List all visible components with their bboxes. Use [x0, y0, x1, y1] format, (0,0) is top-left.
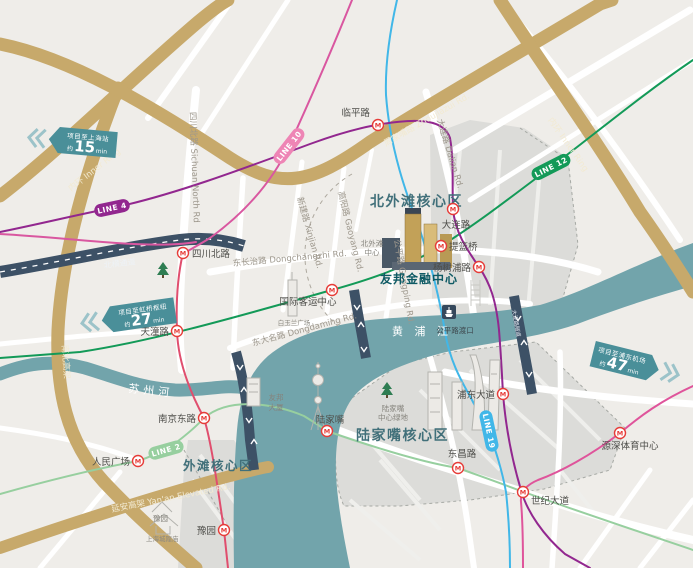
station-marker: M — [327, 285, 338, 296]
lujiazui-green-label: 陆家嘴 — [382, 403, 405, 413]
metro-logo-icon: M — [375, 121, 381, 129]
station-label: 豫园 — [197, 525, 216, 537]
magnolia-plaza-label: 白玉兰广场 — [278, 318, 311, 327]
station-marker: M — [219, 525, 230, 536]
yuyuan-label: 豫园 — [153, 513, 168, 523]
north-bund-center-label: 北外滩 — [361, 238, 384, 248]
station-label: 南京东路 — [158, 413, 197, 425]
station-label: 国际客运中心 — [279, 296, 337, 308]
station-label: 人民广场 — [92, 456, 130, 468]
metro-logo-icon: M — [500, 390, 506, 398]
station-marker: M — [448, 204, 459, 215]
station-marker: M — [453, 463, 464, 474]
metro-logo-icon: M — [180, 249, 186, 257]
lujiazui-area-label: 陆家嘴核心区 — [356, 427, 449, 444]
station-label: 东昌路 — [448, 448, 477, 460]
aia-tower-label: 大厦 — [269, 402, 284, 412]
metro-logo-icon: M — [324, 427, 330, 435]
metro-location-map: 内环 Inner Ring 内环 Inner Ring 周家嘴路 Zhoujia… — [0, 0, 693, 568]
metro-logo-icon: M — [617, 429, 623, 437]
metro-logo-icon: M — [221, 526, 227, 534]
metro-logo-icon: M — [135, 457, 141, 465]
gongping-ferry-label: 公平路渡口 — [436, 325, 474, 335]
north-bund-center-label: 中心 — [365, 247, 380, 257]
metro-logo-icon: M — [520, 488, 526, 496]
station-label: 提篮桥 — [449, 241, 478, 253]
station-marker: M — [178, 248, 189, 259]
station-marker: M — [518, 487, 529, 498]
station-label: 临平路 — [341, 107, 370, 119]
metro-logo-icon: M — [450, 205, 456, 213]
station-marker: M — [373, 120, 384, 131]
station-marker: M — [498, 389, 509, 400]
station-marker: M — [322, 426, 333, 437]
station-label: 世纪大道 — [531, 495, 570, 507]
metro-logo-icon: M — [329, 286, 335, 294]
station-label: 大连路 — [442, 219, 471, 231]
map-canvas: 内环 Inner Ring 内环 Inner Ring 周家嘴路 Zhoujia… — [0, 0, 693, 568]
station-marker: M — [172, 326, 183, 337]
aia-tower-label: 友邦 — [269, 392, 284, 402]
station-label: 浦东大道 — [457, 389, 496, 401]
station-marker: M — [615, 428, 626, 439]
metro-logo-icon: M — [174, 327, 180, 335]
station-marker: M — [474, 262, 485, 273]
station-label: 杨树浦路 — [433, 262, 472, 274]
metro-logo-icon: M — [476, 263, 482, 271]
aia-building-sketch — [247, 378, 260, 406]
metro-logo-icon: M — [455, 464, 461, 472]
station-label: 四川北路 — [192, 248, 231, 260]
station-marker: M — [133, 456, 144, 467]
station-label: 源深体育中心 — [601, 440, 659, 452]
station-marker: M — [436, 241, 447, 252]
station-marker: M — [199, 413, 210, 424]
metro-logo-icon: M — [201, 414, 207, 422]
metro-logo-icon: M — [438, 242, 444, 250]
station-label: 陆家嘴 — [316, 414, 345, 426]
ferry-icon — [442, 305, 456, 319]
bund-area-label: 外滩核心区 — [182, 458, 253, 473]
lujiazui-green-label: 中心绿地 — [378, 412, 408, 422]
city-god-temple-label: 上海城隍庙 — [146, 534, 179, 543]
